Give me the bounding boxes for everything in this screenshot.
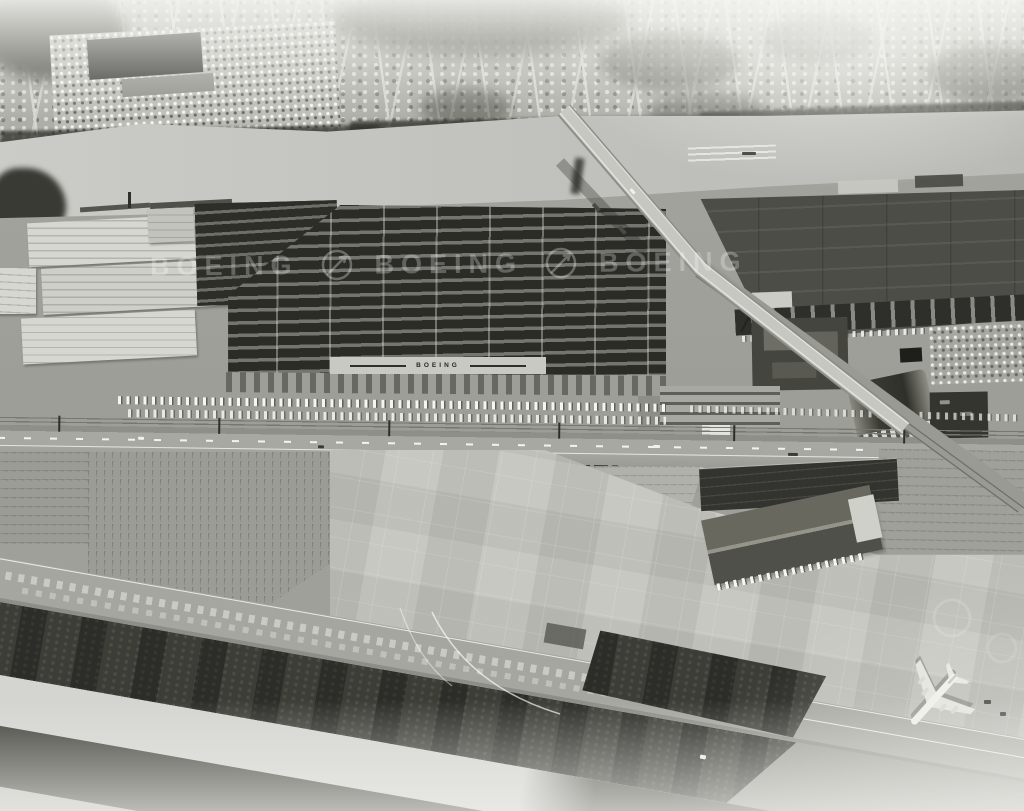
boeing-watermark: BOEING BOEING BOEING [150, 243, 748, 284]
watermark-text: BOEING [374, 248, 523, 280]
boeing-logo-icon [318, 247, 354, 283]
boeing-logo-icon [543, 245, 579, 281]
watermark-text: BOEING [599, 246, 748, 278]
aerial-photo: BOEING [0, 0, 1024, 811]
watermark-text: BOEING [150, 250, 299, 282]
bridge-shadow-on-water [560, 162, 645, 252]
bridge-and-ramp [0, 0, 1024, 811]
